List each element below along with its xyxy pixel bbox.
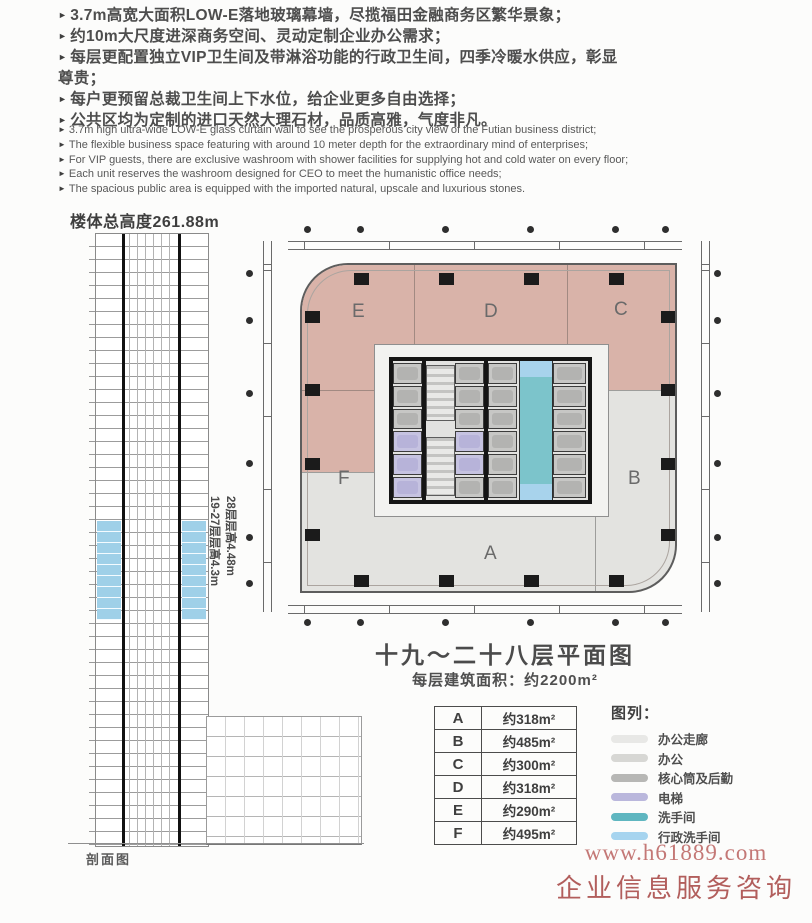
column [661,458,676,470]
dimension-line-bottom [288,605,682,614]
legend-label: 电梯 [658,788,683,807]
column [661,529,676,541]
bullet-arrow-icon: ► [58,94,67,104]
elevator-cell [393,477,422,498]
core-cell [455,386,484,407]
elevator-bank [393,363,422,498]
column [524,575,539,587]
column [305,458,320,470]
legend-swatch [611,774,648,782]
core-cell [488,409,517,430]
core-cell [488,363,517,384]
legend-item: 办公 [611,749,781,769]
building-height-label: 楼体总高度261.88m [70,208,219,232]
legend-swatch [611,754,648,762]
area-cell: 约290m² [482,799,577,822]
section-caption: 剖面图 [86,849,131,868]
elevator-bank [455,363,484,498]
area-cell: 约318m² [482,707,577,730]
plan-title: 十九～二十八层平面图 [330,636,680,670]
elevator-cell [393,431,422,452]
feature-text: For VIP guests, there are exclusive wash… [69,154,628,166]
bullet-arrow-icon: ► [58,125,66,134]
elevator-cell [393,454,422,475]
core-cell [553,386,586,407]
floor-height-label-19-27: 19-27层层高4.3m [206,496,222,628]
zone-cell: F [435,822,482,845]
feature-text: 3.7m高宽大面积LOW-E落地玻璃幕墙，尽揽福田金融商务区繁华景象； [70,7,570,24]
core-cell [488,431,517,452]
table-row: C约300m² [435,753,577,776]
zone-label-f: F [338,468,350,490]
legend-item: 办公走廊 [611,729,781,749]
zone-cell: D [435,776,482,799]
zone-cell: B [435,730,482,753]
elevator-cell [455,431,484,452]
core-cell [553,454,586,475]
bullet-arrow-icon: ► [58,140,66,149]
column [354,575,369,587]
legend-item: 核心筒及后勤 [611,768,781,788]
area-cell: 约318m² [482,776,577,799]
core-cell [393,386,422,407]
core-cell [393,409,422,430]
table-row: E约290m² [435,799,577,822]
core-cell [455,409,484,430]
feature-text: The spacious public area is equipped wit… [69,183,525,195]
stairwell [426,437,455,496]
legend-label: 洗手间 [658,807,696,826]
core-cell [553,363,586,384]
elevator-bank [553,363,586,498]
bullet-arrow-icon: ► [58,169,66,178]
column [305,529,320,541]
column [609,273,624,285]
legend-swatch [611,813,648,821]
bullet-arrow-icon: ► [58,52,67,62]
feature-item: ►每户更预留总裁卫生间上下水位，给企业更多自由选择； [58,89,618,110]
column [305,384,320,396]
feature-text: The flexible business space featuring wi… [69,139,588,151]
highlighted-floors-band [97,521,121,620]
core-cell [553,477,586,498]
area-table: A约318m² B约485m² C约300m² D约318m² E约290m² … [434,706,577,845]
zone-cell: A [435,707,482,730]
feature-item: ►Each unit reserves the washroom designe… [58,167,638,182]
executive-washroom [520,484,552,500]
bullet-arrow-icon: ► [58,184,66,193]
feature-item: ►每层更配置独立VIP卫生间及带淋浴功能的行政卫生间，四季冷暖水供应，彰显尊贵； [58,47,618,89]
column [439,273,454,285]
core-cell [553,409,586,430]
feature-text: 3.7m high ultra-wide LOW-E glass curtain… [69,124,596,136]
dimension-line-top [288,241,682,250]
column [305,311,320,323]
bullet-arrow-icon: ► [58,155,66,164]
dimension-line-right [701,241,710,612]
core-cell [488,477,517,498]
plan-area-note: 每层建筑面积：约2200m² [330,669,680,690]
legend-item: 电梯 [611,788,781,808]
feature-item: ►约10m大尺度进深商务空间、灵动定制企业办公需求； [58,26,618,47]
legend-item: 洗手间 [611,807,781,827]
core-cell [393,363,422,384]
core-cell [455,477,484,498]
column [354,273,369,285]
floor-tick-marks [89,234,95,846]
feature-item: ►For VIP guests, there are exclusive was… [58,153,638,168]
feature-item: ►The spacious public area is equipped wi… [58,182,638,197]
bullet-arrow-icon: ► [58,10,67,20]
building-section-tower [95,233,209,847]
stairwell [426,365,455,421]
column [661,311,676,323]
table-row: A约318m² [435,707,577,730]
elevator-bank [488,363,517,498]
column [609,575,624,587]
column [524,273,539,285]
legend-title: 图列： [611,702,781,723]
feature-item: ►The flexible business space featuring w… [58,138,638,153]
executive-washroom [520,361,552,377]
floor-plan: E D C F B A [300,263,677,593]
elevator-cell [455,454,484,475]
legend-label: 办公 [658,749,683,768]
table-row: D约318m² [435,776,577,799]
feature-list-cn: ►3.7m高宽大面积LOW-E落地玻璃幕墙，尽揽福田金融商务区繁华景象； ►约1… [58,5,618,131]
core-cell [488,386,517,407]
feature-text: 每层更配置独立VIP卫生间及带淋浴功能的行政卫生间，四季冷暖水供应，彰显尊贵； [58,49,618,87]
floor-height-label-28: 28层层高4.48m [222,496,238,628]
ground-line [68,843,364,844]
building-core [389,357,592,504]
column [661,384,676,396]
podium-section [206,716,362,845]
feature-item: ►3.7m high ultra-wide LOW-E glass curtai… [58,123,638,138]
zone-label-d: D [484,301,498,323]
legend-label: 办公走廊 [658,729,708,748]
column [439,575,454,587]
zone-label-c: C [614,299,628,321]
watermark-url: www.h61889.com [556,840,796,866]
watermark: www.h61889.com 企业信息服务咨询 [556,840,796,905]
dimension-line-left [263,241,272,612]
bullet-arrow-icon: ► [58,31,67,41]
legend-label: 核心筒及后勤 [658,768,733,787]
highlighted-floors-band [182,521,206,620]
feature-text: Each unit reserves the washroom designed… [69,168,502,180]
core-wall-line [178,234,181,846]
feature-item: ►3.7m高宽大面积LOW-E落地玻璃幕墙，尽揽福田金融商务区繁华景象； [58,5,618,26]
area-cell: 约485m² [482,730,577,753]
legend-swatch [611,793,648,801]
zone-cell: C [435,753,482,776]
washroom-strip [519,361,553,500]
zone-label-e: E [352,301,365,323]
legend: 图列： 办公走廊 办公 核心筒及后勤 电梯 洗手间 行政洗手间 [611,702,781,846]
core-wall-line [122,234,125,846]
floor-height-labels: 28层层高4.48m 19-27层层高4.3m [206,496,238,628]
legend-swatch [611,735,648,743]
core-cell [553,431,586,452]
area-cell: 约300m² [482,753,577,776]
zone-label-b: B [628,468,641,490]
core-cell [488,454,517,475]
feature-list-en: ►3.7m high ultra-wide LOW-E glass curtai… [58,123,638,197]
feature-text: 约10m大尺度进深商务空间、灵动定制企业办公需求； [70,28,450,45]
feature-text: 每户更预留总裁卫生间上下水位，给企业更多自由选择； [70,91,465,108]
core-cell [455,363,484,384]
watermark-caption: 企业信息服务咨询 [556,868,796,905]
table-row: B约485m² [435,730,577,753]
core-shaft-lines [129,234,175,846]
zone-cell: E [435,799,482,822]
zone-label-a: A [484,543,497,565]
